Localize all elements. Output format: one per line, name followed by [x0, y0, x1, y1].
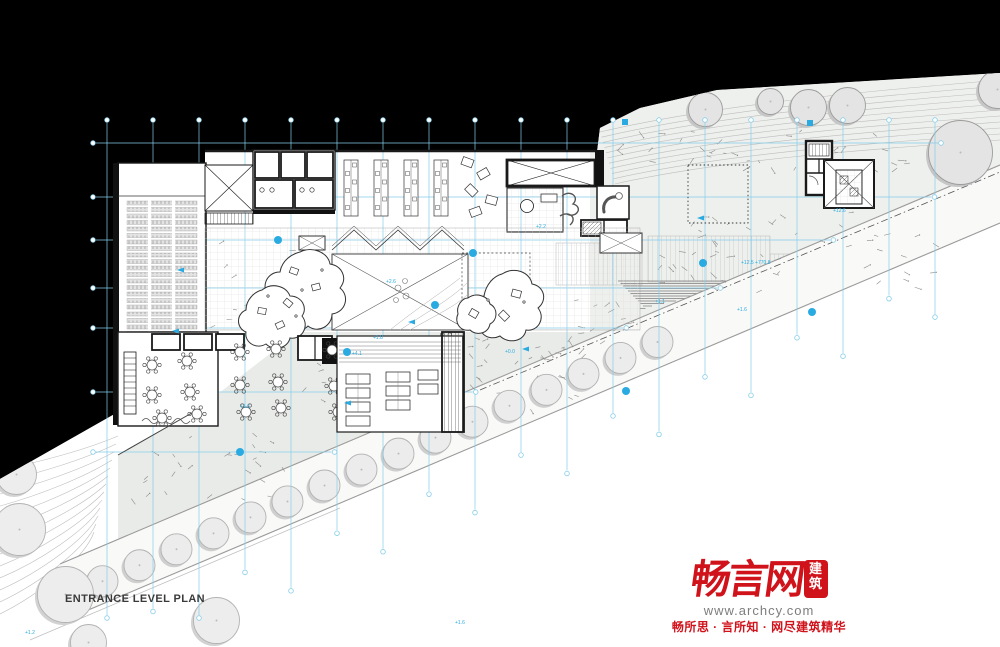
seat-row: [127, 312, 197, 316]
logo-brand-text: 畅言网: [688, 560, 805, 600]
grid-marker: [933, 315, 938, 320]
desk-column: [344, 160, 358, 216]
grid-marker: [105, 118, 110, 123]
level-annotation: +0.0: [505, 349, 515, 355]
level-annotation: +1.6: [455, 620, 465, 626]
seat-row: [127, 260, 197, 264]
survey-square: [807, 120, 813, 126]
grid-marker: [381, 118, 386, 123]
grid-marker: [565, 471, 570, 476]
seat-row: [127, 201, 197, 205]
survey-square: [622, 119, 628, 125]
watermark-logo: 畅言网 建筑 www.archcy.com 畅所思 · 言所知 · 网尽建筑精华: [664, 560, 854, 633]
grid-marker: [519, 453, 524, 458]
grid-marker: [841, 118, 846, 123]
grid-marker: [932, 195, 937, 200]
grid-marker: [795, 335, 800, 340]
grid-marker: [831, 238, 836, 243]
logo-url: www.archcy.com: [664, 604, 854, 617]
level-annotation: +1.8: [373, 335, 383, 341]
grid-marker: [335, 118, 340, 123]
grid-marker: [151, 118, 156, 123]
grid-marker: [657, 432, 662, 437]
seat-row: [127, 319, 197, 323]
grid-marker: [91, 450, 96, 455]
grid-marker: [381, 549, 386, 554]
pavilion: [824, 160, 874, 208]
grid-marker: [565, 118, 570, 123]
floor-plan-canvas: +12.5 +770.8+1.6+1.1+2.6+1.8+0.0+12.6+1.…: [0, 0, 1000, 647]
grid-marker: [91, 238, 96, 243]
survey-dot: [699, 259, 707, 267]
seat-row: [127, 214, 197, 218]
survey-dot: [274, 236, 282, 244]
grid-marker: [795, 118, 800, 123]
seat-row: [127, 247, 197, 251]
grid-marker: [289, 589, 294, 594]
grid-marker: [887, 118, 892, 123]
seat-row: [127, 286, 197, 290]
level-annotation: +1.2: [25, 630, 35, 636]
seat-row: [127, 227, 197, 231]
seat-row: [127, 299, 197, 303]
grid-marker: [703, 118, 708, 123]
desk-column: [434, 160, 448, 216]
survey-dot: [431, 301, 439, 309]
grid-marker: [703, 375, 708, 380]
grid-marker: [91, 195, 96, 200]
level-annotation: +12.6: [833, 208, 846, 214]
survey-dot: [808, 308, 816, 316]
office-south: [337, 332, 464, 432]
grid-marker: [611, 414, 616, 419]
desk-column: [374, 160, 388, 216]
seat-row: [127, 305, 197, 309]
seat-row: [127, 208, 197, 212]
grid-marker: [197, 616, 202, 621]
grid-marker: [473, 510, 478, 515]
grid-marker: [841, 354, 846, 359]
grid-marker: [91, 141, 96, 146]
level-annotation: +2.2: [536, 224, 546, 230]
grid-marker: [197, 118, 202, 123]
entrance-level-plan-sheet: +12.5 +770.8+1.6+1.1+2.6+1.8+0.0+12.6+1.…: [0, 0, 1000, 647]
survey-dot: [343, 348, 351, 356]
grid-marker: [749, 118, 754, 123]
grid-marker: [427, 118, 432, 123]
logo-seal-stamp: 建筑: [804, 560, 828, 598]
level-annotation: +2.6: [386, 279, 396, 285]
seat-row: [127, 240, 197, 244]
grid-marker: [289, 118, 294, 123]
level-annotation: +1.6: [737, 307, 747, 313]
grid-marker: [91, 286, 96, 291]
grid-marker: [657, 118, 662, 123]
grid-marker: [243, 118, 248, 123]
seat-row: [127, 234, 197, 238]
grid-marker: [91, 326, 96, 331]
grid-marker: [335, 531, 340, 536]
grid-marker: [332, 450, 337, 455]
seat-row: [127, 273, 197, 277]
grid-marker: [243, 570, 248, 575]
logo-tagline: 畅所思 · 言所知 · 网尽建筑精华: [664, 621, 854, 633]
grid-marker: [473, 118, 478, 123]
grid-marker: [473, 390, 478, 395]
seat-row: [127, 325, 197, 329]
grid-marker: [91, 390, 96, 395]
desk-column: [404, 160, 418, 216]
survey-dot: [236, 448, 244, 456]
page-title: ENTRANCE LEVEL PLAN: [65, 593, 205, 605]
logo-row: 畅言网 建筑: [664, 560, 854, 600]
survey-dot: [469, 249, 477, 257]
level-annotation: +1.1: [655, 299, 665, 305]
level-annotation: +4.1: [352, 351, 362, 357]
grid-marker: [519, 118, 524, 123]
grid-marker: [939, 141, 944, 146]
grid-marker: [105, 616, 110, 621]
survey-dot: [622, 387, 630, 395]
grid-marker: [151, 609, 156, 614]
seat-row: [127, 253, 197, 257]
level-annotation: +1.6: [240, 404, 250, 410]
seat-row: [127, 292, 197, 296]
grid-marker: [427, 492, 432, 497]
grid-marker: [887, 296, 892, 301]
seat-row: [127, 266, 197, 270]
seat-row: [127, 279, 197, 283]
grid-marker: [933, 118, 938, 123]
grid-marker: [749, 393, 754, 398]
seat-row: [127, 221, 197, 225]
level-annotation: +12.5 +770.8: [741, 260, 771, 266]
grid-marker: [611, 118, 616, 123]
grid-marker: [718, 286, 723, 291]
